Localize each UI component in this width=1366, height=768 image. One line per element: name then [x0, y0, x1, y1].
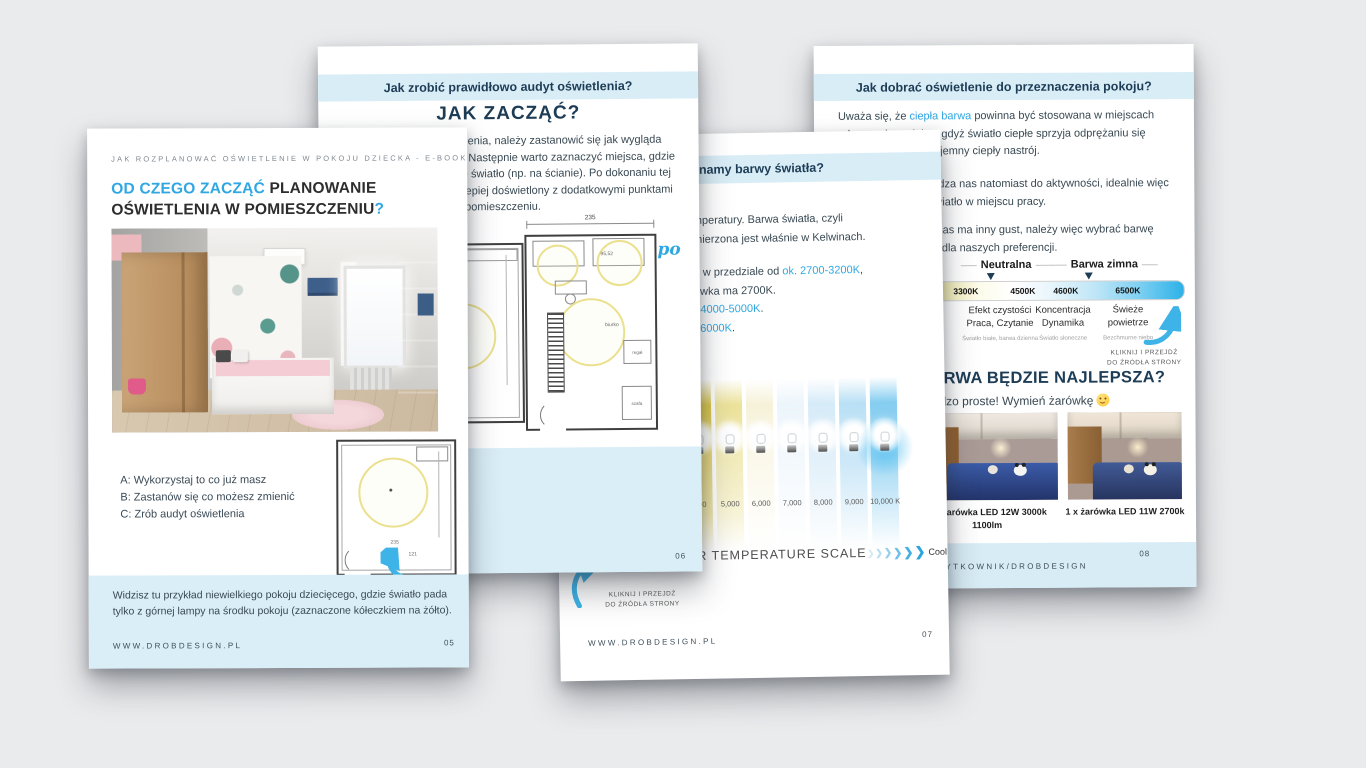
bulb-column: 10,000 K	[868, 376, 902, 549]
page-05: JAK ROZPLANOWAĆ OŚWIETLENIE W POKOJU DZI…	[87, 127, 469, 668]
paragraph-fragment: ietlenia, należy zastanowić się jak wygl…	[453, 132, 674, 150]
footer-link-fragment[interactable]: ŻYTKOWNIK/DROBDESIGN	[938, 562, 1088, 572]
scale-caption-row: OR TEMPERATURE SCALE ❯ ❯ ❯ ❯ ❯ ❯ Cool	[686, 544, 947, 565]
furniture-label: biurko	[605, 322, 619, 328]
footer-link[interactable]: WWW.DROBDESIGN.PL	[113, 641, 242, 650]
bulb-label: 7,000	[783, 498, 802, 507]
furniture-label: szafa	[622, 386, 652, 420]
bulb-column: 5,000	[713, 379, 747, 552]
cool-label: Cool	[928, 547, 947, 557]
paragraph-fragment: wiatło w miejscu pracy.	[934, 193, 1046, 212]
click-source-note[interactable]: KLIKNIJ I PRZEJDŹ DO ŹRÓDŁA STRONY	[1103, 348, 1185, 368]
pointer-triangle-icon	[987, 273, 995, 280]
page-07-header-title-fragment: namy barwy światła?	[699, 161, 824, 177]
chevron-icon: ❯	[875, 547, 883, 558]
bulb-label: 8,000	[814, 498, 833, 507]
window	[344, 266, 406, 369]
temp-label: 3300K	[953, 286, 978, 296]
panda-plush	[1014, 465, 1027, 476]
temp-label: 4600K	[1053, 286, 1078, 296]
curved-arrow-icon	[1141, 306, 1181, 348]
dimension-label: 121	[409, 552, 417, 558]
paragraph-line: Uważa się, że ciepła barwa powinna być s…	[838, 106, 1154, 126]
paragraph-fragment: ę w przedziale od ok. 2700-3200K,	[694, 261, 867, 283]
paragraph-fragment: e lepiej doświetlony z dodatkowymi punkt…	[454, 181, 675, 199]
bar-label-cold: Barwa zimna	[1051, 258, 1158, 271]
paragraph-fragment: dza nas natomiast do aktywności, idealni…	[938, 174, 1169, 193]
paragraph-fragment: mperatury. Barwa światła, czyli	[693, 209, 866, 231]
floorplan-after: 235 95,52 biurko regał szafa	[524, 234, 658, 431]
bar-label-neutral: Neutralna	[961, 259, 1052, 271]
option-item: A: Wykorzystaj to co już masz	[120, 472, 294, 490]
page-number: 06	[675, 551, 686, 560]
color-temperature-scale-graphic: ,000 5,000 6,000 7,000 8,000 9,000 10,00…	[682, 376, 902, 552]
note-text: Widzisz tu przykład niewielkiego pokoju …	[113, 587, 452, 619]
page-number: 05	[444, 638, 455, 647]
bar-subcaption: Światło słoneczne	[1039, 336, 1087, 342]
dimension-label: 235	[582, 214, 599, 221]
pointer-triangle-icon	[1085, 273, 1093, 280]
highlight-warm-color: ciepła barwa	[909, 110, 971, 122]
bulb-column: 7,000	[775, 378, 809, 551]
ebook-preview-stage: Jak dobrać oświetlenie do przeznaczenia …	[0, 0, 1366, 768]
page-number: 07	[922, 630, 933, 639]
kelvin-value: 4000-5000K	[700, 303, 760, 316]
paragraph-fragment: w pomieszczeniu.	[454, 198, 675, 216]
chevron-icon: ❯	[903, 545, 913, 559]
footer-link[interactable]: WWW.DROBDESIGN.PL	[588, 637, 717, 648]
kelvin-value: 6000K	[700, 322, 732, 335]
color-temperature-bar: 3300K 4500K 4600K 6500K	[905, 280, 1185, 301]
page-05-note-box: Widzisz tu przykład niewielkiego pokoju …	[89, 574, 469, 668]
section-title-fragment: ARWA BĘDZIE NAJLEPSZA?	[931, 368, 1165, 388]
kids-room-photo	[111, 227, 438, 432]
handwritten-annotation: po	[657, 240, 680, 260]
bulb-label: 10,000 K	[870, 496, 900, 506]
light-circle	[557, 298, 626, 367]
bulb-column: 6,000	[744, 379, 778, 552]
section-subtitle: rdzo proste! Wymień żarówkę	[935, 393, 1109, 408]
bed	[947, 463, 1058, 500]
chevron-icon: ❯	[884, 547, 893, 558]
chevron-icon: ❯	[893, 546, 902, 559]
option-item: C: Zrób audyt oświetlenia	[120, 506, 294, 524]
paragraph-fragment: nas ma inny gust, należy więc wybrać bar…	[937, 220, 1154, 239]
ladder-shelf-desk	[398, 261, 439, 415]
furniture-label: regał	[623, 340, 651, 364]
room-photo-2700k	[1068, 412, 1182, 500]
paragraph-fragment: mierzona jest właśnie w Kelwinach.	[693, 227, 866, 249]
paragraph-fragment: jemny ciepły nastrój.	[940, 142, 1040, 161]
page-08-header-title: Jak dobrać oświetlenie do przeznaczenia …	[856, 79, 1152, 95]
page-06-header-title: Jak zrobić prawidłowo audyt oświetlenia?	[384, 78, 633, 94]
wall-bookshelf	[308, 278, 338, 293]
bulb-label: 6,000	[752, 499, 771, 508]
page-number: 08	[1139, 549, 1150, 558]
options-list: A: Wykorzystaj to co już masz B: Zastanó…	[120, 472, 294, 524]
bulb-label: 9,000	[845, 497, 864, 506]
light-circle	[596, 240, 642, 286]
page-06-header-band: Jak zrobić prawidłowo audyt oświetlenia?	[318, 71, 698, 101]
temp-label: 6500K	[1115, 285, 1140, 295]
page-05-title: OD CZEGO ZACZĄĆ PLANOWANIE OŚWIETLENIA W…	[111, 178, 384, 221]
page-07-body: mperatury. Barwa światła, czyli mierzona…	[693, 209, 868, 338]
ebook-kicker: JAK ROZPLANOWAĆ OŚWIETLENIE W POKOJU DZI…	[111, 153, 467, 163]
scale-caption-fragment: OR TEMPERATURE SCALE	[686, 546, 866, 563]
option-item: B: Zastanów się co możesz zmienić	[120, 489, 294, 507]
lamp-glow	[989, 437, 1011, 459]
paragraph-fragment: j 6000K.	[694, 316, 867, 338]
door-arc	[540, 402, 567, 429]
click-source-note[interactable]: KLIKNIJ I PRZEJDŹ DO ŹRÓDŁA STRONY	[603, 589, 681, 610]
dimension-label: 235	[390, 540, 398, 546]
paragraph-fragment: we światło (np. na ścianie). Po dokonani…	[454, 165, 675, 183]
smiley-emoji-icon	[1096, 393, 1109, 406]
door-arc	[345, 547, 372, 574]
chevron-icon: ❯	[868, 548, 875, 557]
chevron-icon: ❯	[914, 544, 925, 560]
paragraph-fragment: ju. Następnie warto zaznaczyć miejsca, g…	[454, 148, 675, 166]
kelvin-value: ok. 2700-3200K	[782, 264, 860, 277]
page-08-header-band: Jak dobrać oświetlenie do przeznaczenia …	[814, 72, 1194, 101]
dimension-label: 95,52	[600, 251, 613, 257]
bar-column: Koncentracja Dynamika	[1026, 304, 1100, 330]
light-circle	[358, 457, 428, 527]
bulb-label: 5,000	[721, 499, 740, 508]
photo-caption-right: 1 x żarówka LED 11W 2700k	[1064, 505, 1186, 519]
page-06-body: ietlenia, należy zastanowić się jak wygl…	[453, 132, 675, 216]
paragraph-fragment: ą dla naszych preferencji.	[933, 239, 1058, 258]
bar-subcaption: Światło białe, barwa dzienna	[962, 336, 1038, 342]
bulb-column: 8,000	[806, 377, 840, 550]
page-06-title: JAK ZACZĄĆ?	[318, 101, 698, 126]
temp-label: 4500K	[1010, 286, 1035, 296]
wardrobe-hatch	[547, 313, 565, 393]
